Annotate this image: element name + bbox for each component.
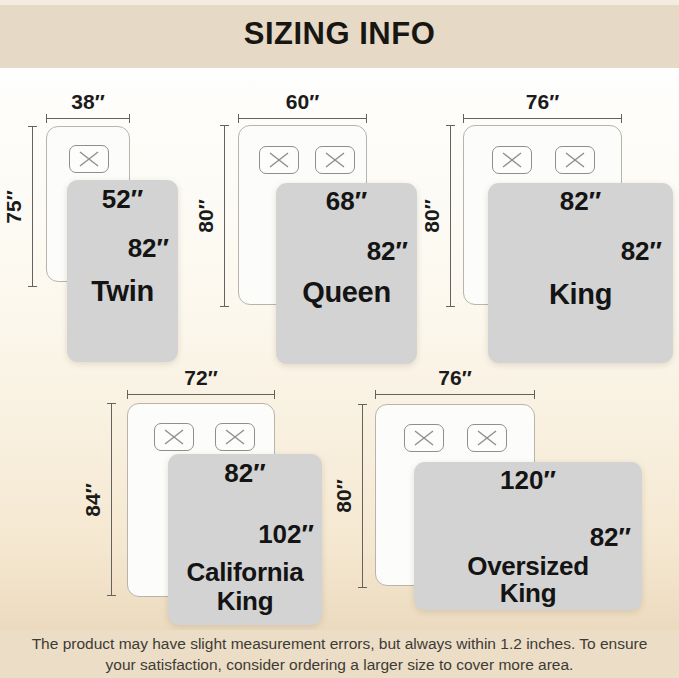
bed-length-dimension: 84″ <box>107 403 116 596</box>
dimension-line-horizontal <box>375 390 535 399</box>
x-icon <box>265 151 293 169</box>
disclaimer-text: The product may have slight measurement … <box>28 633 652 675</box>
blanket-size-name: Oversized King <box>414 553 642 607</box>
bed-length-dimension: 80″ <box>358 404 367 588</box>
footer-band: The product may have slight measurement … <box>0 630 679 678</box>
bed-width-label: 76″ <box>463 90 622 112</box>
blanket-overlay: 52″ 82″ Twin <box>67 180 178 362</box>
page-title: SIZING INFO <box>244 16 436 52</box>
x-icon <box>321 151 349 169</box>
blanket-length-label: 102″ <box>258 519 314 550</box>
x-icon <box>221 428 249 446</box>
bed-width-dimension: 60″ <box>238 90 367 123</box>
x-icon <box>75 150 103 168</box>
pillow-icon <box>555 146 595 174</box>
blanket-overlay: 82″ 82″ King <box>488 183 673 363</box>
blanket-length-label: 82″ <box>621 236 662 267</box>
blanket-length-label: 82″ <box>128 233 169 264</box>
blanket-overlay: 120″ 82″ Oversized King <box>414 462 642 610</box>
dimension-line-vertical <box>220 125 229 307</box>
blanket-width-label: 82″ <box>488 186 673 217</box>
blanket-length-label: 82″ <box>367 236 408 267</box>
blanket-length-label: 82″ <box>590 522 631 553</box>
bed-length-label: 80″ <box>194 199 218 232</box>
bed-width-label: 38″ <box>46 90 130 112</box>
x-icon <box>410 429 438 447</box>
dimension-line-horizontal <box>46 114 130 123</box>
bed-length-dimension: 75″ <box>28 126 37 287</box>
pillow-icon <box>492 146 532 174</box>
header-band: SIZING INFO <box>0 0 679 68</box>
bed-width-dimension: 76″ <box>463 90 622 123</box>
blanket-size-name: Twin <box>67 276 178 307</box>
x-icon <box>473 429 501 447</box>
dimension-line-horizontal <box>238 114 367 123</box>
bed-width-label: 60″ <box>238 90 367 112</box>
pillow-icon <box>315 146 355 174</box>
pillow-icon <box>259 146 299 174</box>
blanket-size-name: King <box>488 279 673 310</box>
bed-width-dimension: 76″ <box>375 366 535 399</box>
sizing-info-graphic: SIZING INFO 38″ 75″ 52″ 82″ Twin 60″ <box>0 0 679 678</box>
blanket-overlay: 68″ 82″ Queen <box>276 183 417 364</box>
dimension-line-horizontal <box>127 390 275 399</box>
dimension-line-vertical <box>446 125 455 307</box>
dimension-line-vertical <box>358 404 367 588</box>
x-icon <box>561 151 589 169</box>
pillow-icon <box>404 424 444 452</box>
blanket-width-label: 120″ <box>414 465 642 496</box>
bed-width-label: 76″ <box>375 366 535 388</box>
bed-length-label: 75″ <box>2 190 26 223</box>
x-icon <box>498 151 526 169</box>
blanket-size-name: California King <box>168 558 322 616</box>
bed-width-dimension: 38″ <box>46 90 130 123</box>
blanket-overlay: 82″ 102″ California King <box>168 454 322 625</box>
bed-width-label: 72″ <box>127 366 275 388</box>
pillow-icon <box>467 424 507 452</box>
blanket-size-name: Queen <box>276 277 417 308</box>
bed-length-label: 80″ <box>332 479 356 512</box>
pillow-icon <box>69 145 109 173</box>
x-icon <box>160 428 188 446</box>
dimension-line-vertical <box>28 126 37 287</box>
blanket-width-label: 52″ <box>67 184 178 215</box>
pillow-icon <box>154 423 194 451</box>
dimension-line-vertical <box>107 403 116 596</box>
bed-length-dimension: 80″ <box>220 125 229 307</box>
pillow-icon <box>215 423 255 451</box>
dimension-line-horizontal <box>463 114 622 123</box>
bed-width-dimension: 72″ <box>127 366 275 399</box>
blanket-width-label: 82″ <box>168 458 322 489</box>
bed-length-label: 84″ <box>81 483 105 516</box>
bed-length-dimension: 80″ <box>446 125 455 307</box>
blanket-width-label: 68″ <box>276 186 417 217</box>
bed-length-label: 80″ <box>420 199 444 232</box>
